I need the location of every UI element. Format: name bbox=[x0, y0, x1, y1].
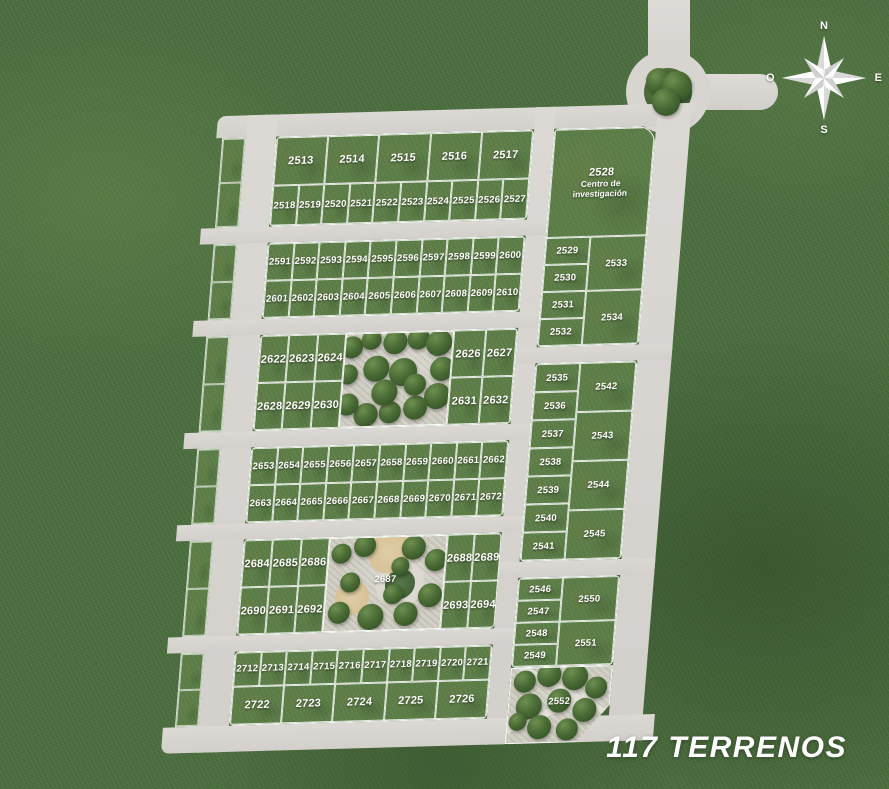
lot-grid-right: 2626262726312632 bbox=[447, 329, 518, 425]
tree-icon bbox=[652, 88, 680, 116]
lot: 2543 bbox=[572, 411, 632, 462]
lot-number: 2690 bbox=[240, 604, 266, 617]
perimeter-lot bbox=[176, 690, 201, 727]
lot-number: 2537 bbox=[541, 428, 564, 440]
lot-number: 2629 bbox=[285, 399, 311, 412]
lot-number: 2547 bbox=[527, 605, 550, 617]
lot: 2536 bbox=[532, 391, 578, 420]
lot: 2524 bbox=[424, 181, 453, 221]
lot-number: 2599 bbox=[473, 250, 496, 262]
project-title: 117 TERRENOS bbox=[606, 731, 847, 765]
lot-number: 2661 bbox=[457, 455, 480, 467]
lot: 2527 bbox=[500, 179, 529, 219]
lot-number: 2718 bbox=[389, 659, 412, 671]
tree-icon bbox=[584, 676, 608, 699]
block-2622-2632: 2622262326242628262926302626262726312632 bbox=[253, 328, 519, 431]
park: 2687 bbox=[322, 535, 448, 633]
lot: 2654 bbox=[275, 447, 304, 485]
lot: 2522 bbox=[372, 182, 401, 222]
lot: 2537 bbox=[530, 419, 576, 448]
lot: 2526 bbox=[475, 180, 504, 220]
block-2684-2694: 2684268526862690269126922687268826892693… bbox=[236, 532, 502, 635]
lot: 2531 bbox=[540, 291, 586, 319]
lot-number: 2549 bbox=[523, 649, 546, 661]
lot-number: 2631 bbox=[451, 394, 477, 407]
lot-number: 2515 bbox=[390, 152, 416, 165]
lot: 2722 bbox=[230, 685, 284, 725]
lot: 2605 bbox=[365, 277, 394, 315]
lot: 2660 bbox=[428, 442, 457, 480]
tree-icon bbox=[357, 604, 385, 631]
lot: 2595 bbox=[368, 240, 397, 278]
perimeter-lot bbox=[187, 541, 213, 589]
lot-number: 2656 bbox=[329, 458, 352, 470]
lot: 2715 bbox=[310, 650, 338, 685]
lot: 2689 bbox=[471, 533, 502, 581]
lot-row: 26312632 bbox=[447, 376, 514, 425]
lot: 2539 bbox=[525, 475, 571, 504]
lot: 2628 bbox=[254, 382, 286, 430]
lot: 2607 bbox=[416, 276, 445, 314]
lot-number: 2601 bbox=[266, 293, 289, 305]
tree-icon bbox=[508, 713, 527, 732]
lot: 2549 bbox=[512, 644, 558, 667]
lot: 2668 bbox=[374, 481, 403, 519]
lot: 2632 bbox=[478, 376, 513, 424]
block-2513-2527: 2513251425152516251725182519252025212522… bbox=[269, 129, 534, 226]
lot: 2599 bbox=[470, 237, 499, 275]
lot-number: 2546 bbox=[529, 583, 552, 595]
lot: 2629 bbox=[282, 381, 314, 429]
lot: 2545 bbox=[565, 509, 625, 560]
lot: 2684 bbox=[241, 540, 273, 588]
lot-number: 2598 bbox=[448, 251, 471, 263]
perimeter-lot bbox=[216, 183, 242, 228]
lot-row: 262226232624 bbox=[257, 334, 346, 383]
perimeter-lot bbox=[220, 138, 246, 183]
lot: 2532 bbox=[538, 318, 584, 346]
lot-number: 2720 bbox=[441, 658, 464, 670]
lot-number: 2516 bbox=[441, 150, 467, 163]
lot-number: 2529 bbox=[556, 245, 579, 257]
lot-number: 2714 bbox=[287, 662, 310, 674]
lot-number: 2626 bbox=[455, 347, 481, 360]
block-2535-2545: 2535253625372538253925402541254225432544… bbox=[519, 360, 637, 561]
tree-icon bbox=[327, 601, 351, 624]
lot-header: 2528Centro de investigación bbox=[546, 127, 655, 238]
park-label: 2552 bbox=[548, 696, 571, 708]
lot-number: 2607 bbox=[419, 289, 442, 301]
lot-number: 2539 bbox=[537, 484, 560, 496]
lot: 2594 bbox=[342, 241, 371, 279]
tree-icon bbox=[361, 331, 383, 350]
lot: 2544 bbox=[568, 460, 628, 511]
lot-row: 269026912692 bbox=[237, 585, 326, 634]
lot-number: 2594 bbox=[345, 254, 368, 266]
lot-number: 2606 bbox=[394, 290, 417, 302]
lot-number: 2719 bbox=[415, 658, 438, 670]
site-plan: 2513251425152516251725182519252025212522… bbox=[0, 0, 889, 789]
lot-number: 2689 bbox=[474, 551, 500, 564]
lot: 2720 bbox=[438, 646, 466, 681]
lot: 2726 bbox=[435, 679, 489, 719]
lot: 2712 bbox=[233, 652, 261, 687]
lot: 2604 bbox=[339, 278, 368, 316]
lot: 2626 bbox=[450, 330, 485, 378]
lot: 2535 bbox=[534, 363, 580, 392]
lot: 2627 bbox=[482, 329, 517, 377]
tree-icon bbox=[417, 583, 443, 608]
perimeter-lot bbox=[212, 245, 237, 283]
lot-row: 27222723272427252726 bbox=[230, 679, 489, 724]
lot: 2665 bbox=[297, 483, 326, 521]
lot: 2670 bbox=[425, 480, 454, 518]
lot-number: 2685 bbox=[272, 556, 298, 569]
compass-west-label: O bbox=[766, 72, 775, 84]
lot-number: 2592 bbox=[294, 255, 317, 267]
lot-number: 2694 bbox=[470, 598, 496, 611]
lot-grid-right: 2688268926932694 bbox=[440, 533, 502, 629]
lot-number: 2721 bbox=[466, 657, 489, 669]
lot: 2686 bbox=[298, 538, 330, 586]
lot-number: 2632 bbox=[483, 394, 509, 407]
tree-icon bbox=[513, 671, 537, 694]
lot: 2610 bbox=[493, 274, 522, 312]
lot: 2533 bbox=[586, 235, 646, 291]
lot-number: 2663 bbox=[249, 498, 272, 510]
lot: 2551 bbox=[556, 620, 616, 666]
lot: 2601 bbox=[263, 280, 292, 318]
lot: 2671 bbox=[451, 479, 480, 517]
tree-icon bbox=[403, 373, 427, 396]
lot-number: 2723 bbox=[295, 697, 321, 710]
lot: 2719 bbox=[412, 647, 440, 682]
lot-row: 268426852686 bbox=[241, 538, 330, 587]
lot-number: 2665 bbox=[300, 496, 323, 508]
lot-number: 2624 bbox=[317, 351, 343, 364]
lot: 2657 bbox=[352, 445, 381, 483]
lot-number: 2596 bbox=[396, 253, 419, 265]
lot-row: 262826292630 bbox=[254, 381, 343, 430]
tree-icon bbox=[400, 535, 426, 560]
lot-number: 2692 bbox=[297, 603, 323, 616]
lot: 2662 bbox=[480, 441, 509, 479]
lot: 2513 bbox=[273, 136, 328, 186]
lot: 2550 bbox=[560, 576, 620, 622]
lot-number: 2523 bbox=[401, 196, 424, 208]
lot-number: 2524 bbox=[427, 195, 450, 207]
tree-icon bbox=[526, 715, 552, 740]
lot-number: 2521 bbox=[350, 198, 373, 210]
lot-column-left: 2546254725482549 bbox=[512, 578, 563, 667]
lot-number: 2543 bbox=[591, 430, 614, 442]
lot: 2714 bbox=[284, 651, 312, 686]
lot-number: 2654 bbox=[278, 460, 301, 472]
lot: 2597 bbox=[419, 239, 448, 277]
lot: 2515 bbox=[376, 133, 431, 183]
lot: 2591 bbox=[266, 243, 295, 281]
lot-number: 2688 bbox=[446, 552, 472, 565]
lot-number: 2669 bbox=[403, 493, 426, 505]
lot-number: 2686 bbox=[301, 556, 327, 569]
lot: 2541 bbox=[521, 531, 567, 560]
lot: 2596 bbox=[394, 239, 423, 277]
lot: 2525 bbox=[449, 180, 478, 220]
block-2528-2534: 2528Centro de investigación2529253025312… bbox=[537, 126, 657, 347]
lot: 2692 bbox=[294, 585, 326, 633]
lot: 2523 bbox=[398, 182, 427, 222]
tree-icon bbox=[393, 602, 419, 627]
lot-number: 2726 bbox=[449, 693, 475, 706]
lot: 2534 bbox=[582, 289, 642, 345]
lot: 2520 bbox=[321, 184, 350, 224]
lot-number: 2538 bbox=[539, 456, 562, 468]
lot-number: 2525 bbox=[452, 195, 475, 207]
lot: 2669 bbox=[400, 480, 429, 518]
compass-north-label: N bbox=[820, 20, 828, 32]
lot-number: 2605 bbox=[368, 290, 391, 302]
lot-row: 26882689 bbox=[444, 533, 502, 582]
lot: 2653 bbox=[249, 447, 278, 485]
lot: 2529 bbox=[544, 237, 590, 265]
lot: 2592 bbox=[291, 242, 320, 280]
lot-columns: 254625472548254925502551 bbox=[512, 576, 619, 667]
lot-number: 2610 bbox=[496, 287, 519, 299]
lot-number: 2528 bbox=[589, 166, 615, 179]
lot: 2519 bbox=[296, 185, 325, 225]
lot: 2516 bbox=[427, 132, 482, 182]
lot: 2725 bbox=[384, 681, 438, 721]
block-2546-2551: 254625472548254925502551 bbox=[511, 575, 620, 668]
lot: 2540 bbox=[523, 503, 569, 532]
lot: 2546 bbox=[517, 578, 563, 601]
lot: 2656 bbox=[326, 445, 355, 483]
lot-number: 2513 bbox=[288, 155, 314, 168]
lot-number: 2667 bbox=[352, 495, 375, 507]
lot: 2548 bbox=[514, 622, 560, 645]
perimeter-lot bbox=[209, 282, 234, 320]
lot-number: 2517 bbox=[492, 149, 518, 162]
lot: 2724 bbox=[332, 682, 386, 722]
tree-icon bbox=[424, 549, 448, 572]
lot-number: 2658 bbox=[380, 457, 403, 469]
lot: 2542 bbox=[576, 361, 636, 412]
lot: 2661 bbox=[454, 442, 483, 480]
lot-number: 2533 bbox=[605, 257, 628, 269]
perimeter-lot bbox=[203, 337, 229, 385]
lot: 2685 bbox=[269, 539, 301, 587]
lot-columns: 2535253625372538253925402541254225432544… bbox=[521, 361, 637, 560]
lot: 2691 bbox=[266, 586, 298, 634]
lot-number: 2527 bbox=[503, 193, 526, 205]
lot-number: 2722 bbox=[244, 699, 270, 712]
block-2653-2672: 2653265426552656265726582659266026612662… bbox=[245, 440, 509, 523]
lot-number: 2530 bbox=[554, 272, 577, 284]
lot-row: 2601260226032604260526062607260826092610 bbox=[263, 274, 522, 318]
lot: 2716 bbox=[335, 649, 363, 684]
lot: 2655 bbox=[300, 446, 329, 484]
lot-number: 2659 bbox=[406, 456, 429, 468]
lot-number: 2534 bbox=[601, 311, 624, 323]
lot: 2631 bbox=[447, 377, 482, 425]
lot: 2694 bbox=[468, 580, 499, 628]
lot-number: 2514 bbox=[339, 153, 365, 166]
lot-number: 2536 bbox=[544, 400, 567, 412]
lot-number: 2518 bbox=[273, 200, 296, 212]
lot-number: 2532 bbox=[549, 326, 572, 338]
lot-grid-left: 268426852686269026912692 bbox=[237, 538, 330, 635]
compass-rose: N E S O bbox=[768, 22, 880, 134]
lot-number: 2630 bbox=[313, 398, 339, 411]
lot-number: 2593 bbox=[320, 255, 343, 267]
lot-columns: 252925302531253225332534 bbox=[538, 235, 647, 346]
lot-number: 2526 bbox=[478, 194, 501, 206]
lot-number: 2604 bbox=[342, 291, 365, 303]
lot-number: 2522 bbox=[375, 197, 398, 209]
lot: 2530 bbox=[542, 264, 588, 292]
lot: 2593 bbox=[317, 242, 346, 280]
lot: 2514 bbox=[324, 135, 379, 185]
lot-number: 2550 bbox=[578, 593, 601, 605]
lot-number: 2657 bbox=[354, 458, 377, 470]
tree-icon bbox=[330, 543, 352, 564]
lot-number: 2545 bbox=[583, 528, 606, 540]
park bbox=[339, 331, 455, 428]
lot-number: 2725 bbox=[398, 694, 424, 707]
lot: 2521 bbox=[347, 183, 376, 223]
lot-column-right: 25332534 bbox=[582, 235, 647, 345]
lot-number: 2664 bbox=[275, 497, 298, 509]
lot-number: 2691 bbox=[268, 604, 294, 617]
lot-number: 2531 bbox=[552, 299, 575, 311]
lot-number: 2662 bbox=[482, 454, 505, 466]
lot-number: 2591 bbox=[269, 256, 292, 268]
lot-number: 2627 bbox=[486, 346, 512, 359]
lot: 2717 bbox=[361, 648, 389, 683]
lot-number: 2597 bbox=[422, 252, 445, 264]
lot: 2672 bbox=[477, 478, 506, 516]
lot-row: 25132514251525162517 bbox=[273, 130, 533, 186]
lot: 2721 bbox=[463, 646, 491, 681]
lot: 2659 bbox=[403, 443, 432, 481]
lot: 2608 bbox=[442, 275, 471, 313]
compass-south-label: S bbox=[820, 124, 827, 136]
lot-number: 2544 bbox=[587, 479, 610, 491]
lot: 2690 bbox=[237, 587, 269, 635]
lot-number: 2660 bbox=[431, 456, 454, 468]
lot-row: 26932694 bbox=[440, 580, 498, 629]
lot-number: 2671 bbox=[454, 492, 477, 504]
lot-number: 2716 bbox=[338, 661, 361, 673]
lot-number: 2724 bbox=[346, 696, 372, 709]
lot: 2713 bbox=[259, 651, 287, 686]
park-label: 2687 bbox=[374, 574, 397, 586]
lot-number: 2684 bbox=[244, 557, 270, 570]
lot: 2603 bbox=[314, 279, 343, 317]
lot-number: 2520 bbox=[324, 198, 347, 210]
lot-number: 2670 bbox=[428, 493, 451, 505]
lot-grid-left: 262226232624262826292630 bbox=[254, 334, 347, 431]
lot: 2667 bbox=[349, 482, 378, 520]
lot-number: 2551 bbox=[574, 637, 597, 649]
lot-number: 2602 bbox=[291, 292, 314, 304]
lot-number: 2540 bbox=[535, 512, 558, 524]
tree-icon bbox=[402, 396, 428, 421]
lot: 2723 bbox=[281, 684, 335, 724]
lot: 2600 bbox=[496, 237, 525, 275]
tree-icon bbox=[391, 557, 410, 576]
lot-number: 2519 bbox=[299, 199, 322, 211]
lot-number: 2653 bbox=[252, 461, 275, 473]
lot-number: 2713 bbox=[261, 663, 284, 675]
lot-number: 2655 bbox=[303, 459, 326, 471]
lot: 2518 bbox=[270, 185, 299, 225]
lot-number: 2672 bbox=[479, 491, 502, 503]
perimeter-lot bbox=[183, 588, 209, 636]
tree-icon bbox=[536, 665, 562, 688]
compass-star-icon bbox=[778, 32, 870, 124]
lot: 2718 bbox=[387, 648, 415, 683]
lot-number: 2535 bbox=[546, 372, 569, 384]
lot-number: 2715 bbox=[313, 661, 336, 673]
lot: 2598 bbox=[445, 238, 474, 276]
lot-number: 2668 bbox=[377, 494, 400, 506]
lot: 2547 bbox=[516, 600, 562, 623]
lot: 2688 bbox=[444, 534, 475, 582]
lot-sublabel: Centro de investigación bbox=[551, 177, 651, 200]
lot-row: 26262627 bbox=[450, 329, 517, 378]
lot: 2630 bbox=[310, 381, 342, 429]
lot-number: 2717 bbox=[364, 660, 387, 672]
lot-number: 2609 bbox=[470, 287, 493, 299]
lot: 2693 bbox=[440, 581, 471, 629]
lot-column-right: 25502551 bbox=[556, 576, 619, 666]
perimeter-lot bbox=[200, 384, 226, 432]
lot: 2538 bbox=[527, 447, 573, 476]
lot-number: 2622 bbox=[260, 353, 286, 366]
lot: 2658 bbox=[377, 444, 406, 482]
block-2712-2726: 2712271327142715271627172718271927202721… bbox=[229, 644, 493, 725]
lot: 2517 bbox=[478, 130, 533, 180]
tree-icon bbox=[362, 355, 390, 382]
lot-number: 2548 bbox=[525, 627, 548, 639]
lot: 2666 bbox=[323, 482, 352, 520]
lot-number: 2628 bbox=[257, 400, 283, 413]
lot-number: 2542 bbox=[595, 381, 618, 393]
tree-icon bbox=[555, 718, 579, 741]
tree-icon bbox=[382, 331, 408, 355]
block-2591-2610: 2591259225932594259525962597259825992600… bbox=[262, 236, 526, 319]
lot: 2622 bbox=[257, 335, 289, 383]
lot-number: 2600 bbox=[499, 250, 522, 262]
tree-icon bbox=[425, 331, 453, 357]
lot: 2624 bbox=[314, 334, 346, 382]
subdivision-plan: 2513251425152516251725182519252025212522… bbox=[173, 103, 692, 754]
lot-number: 2666 bbox=[326, 496, 349, 508]
lot: 2609 bbox=[467, 274, 496, 312]
lot-number: 2608 bbox=[445, 288, 468, 300]
perimeter-lot bbox=[179, 654, 204, 691]
compass-east-label: E bbox=[875, 72, 882, 84]
lot: 2606 bbox=[391, 277, 420, 315]
lot-number: 2623 bbox=[289, 352, 315, 365]
lot: 2664 bbox=[272, 484, 301, 522]
lot-number: 2603 bbox=[317, 292, 340, 304]
tree-icon bbox=[571, 697, 597, 722]
lot-row: 2663266426652666266726682669267026712672 bbox=[246, 478, 505, 522]
lot-number: 2712 bbox=[236, 663, 259, 675]
perimeter-lot bbox=[195, 449, 220, 487]
